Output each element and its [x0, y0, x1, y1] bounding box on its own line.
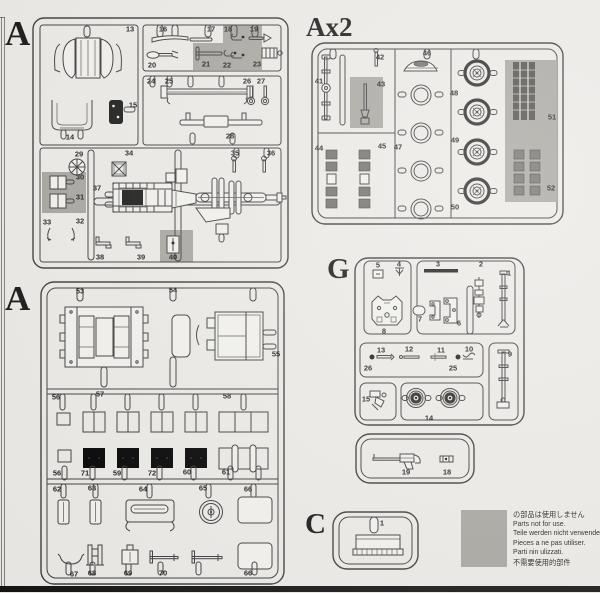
part-label-a2-56: 56	[53, 469, 61, 478]
part-label-a1-23: 23	[253, 60, 261, 69]
legend-line-zh: 不需要使用的部件	[513, 558, 600, 568]
part-label-a2-71: 71	[81, 469, 89, 478]
part-label-a2-54: 54	[169, 286, 177, 295]
part-label-a2-53: 53	[76, 287, 84, 296]
part-label-a1-24: 24	[147, 77, 155, 86]
panel-a1	[33, 18, 288, 268]
part-label-ax2-42: 42	[376, 53, 384, 62]
part-label-a1-26: 26	[243, 77, 251, 86]
panel-a2	[41, 282, 284, 584]
part-label-g-10: 10	[465, 345, 473, 354]
panel-ax2	[312, 43, 563, 224]
part-label-ax2-51: 51	[548, 113, 556, 122]
part-label-g-6: 6	[457, 319, 461, 328]
part-label-g-26: 26	[364, 364, 372, 373]
part-label-a2-59: 59	[113, 469, 121, 478]
panel-letter-ax2: Ax2	[306, 14, 353, 41]
part-label-a2-58: 58	[223, 392, 231, 401]
part-label-a2-57: 57	[96, 390, 104, 399]
part-label-a1-18: 18	[224, 25, 232, 34]
not-for-use-legend: の部品は使用しません Parts not for use. Teile werd…	[513, 510, 600, 567]
box-g-small	[356, 434, 474, 483]
not-for-use-swatch	[461, 510, 507, 567]
part-label-ax2-49: 49	[451, 136, 459, 145]
panel-letter-c: C	[305, 510, 326, 539]
part-label-a2-55: 55	[272, 350, 280, 359]
part-label-a1-29: 29	[75, 150, 83, 159]
part-label-g-4: 4	[397, 260, 401, 269]
part-label-a1-16: 16	[159, 25, 167, 34]
part-label-a2-69: 69	[124, 569, 132, 578]
part-label-g-25: 25	[449, 364, 457, 373]
part-label-a1-32: 32	[76, 217, 84, 226]
part-label-a1-27: 27	[257, 77, 265, 86]
part-label-a1-34: 34	[125, 149, 133, 158]
part-label-g-9: 9	[508, 350, 512, 359]
part-label-a1-33: 33	[43, 218, 51, 227]
part-label-a1-17: 17	[207, 25, 215, 34]
panel-letter-g: G	[327, 255, 350, 284]
part-label-a1-36: 36	[267, 149, 275, 158]
part-label-g-5: 5	[376, 261, 380, 270]
part-label-a1-37: 37	[93, 184, 101, 193]
part-label-g-2: 2	[479, 260, 483, 269]
legend-line-fr: Pieces a ne pas utiliser.	[513, 539, 600, 549]
panel-g	[355, 258, 524, 425]
part-label-g-8: 8	[382, 327, 386, 336]
part-label-g-1: 1	[507, 269, 511, 278]
part-label-a1-21: 21	[202, 60, 210, 69]
part-label-a2-63: 63	[88, 484, 96, 493]
part-label-a1-25: 25	[165, 77, 173, 86]
part-label-ax2-41: 41	[315, 77, 323, 86]
part-label-ax2-48: 48	[450, 89, 458, 98]
wheels-ax2	[458, 61, 497, 203]
part-label-a2-67: 67	[70, 570, 78, 579]
part-label-ax2-47: 47	[394, 143, 402, 152]
part-label-ax2-43: 43	[377, 80, 385, 89]
part-label-a2-65: 65	[199, 484, 207, 493]
part-label-a2-61: 61	[222, 468, 230, 477]
part-label-g-12: 12	[405, 345, 413, 354]
part-label-ax2-52: 52	[547, 184, 555, 193]
part-label-a1-30: 30	[76, 173, 84, 182]
panel-letter-a1: A	[5, 16, 30, 51]
part-label-a1-20: 20	[148, 61, 156, 70]
part-label-g-3: 3	[436, 260, 440, 269]
part-label-a1-19: 19	[250, 25, 258, 34]
part-label-a1-35: 35	[231, 149, 239, 158]
part-label-a1-31: 31	[76, 193, 84, 202]
part-label-c-1: 1	[380, 519, 384, 528]
part-label-g-18: 18	[443, 468, 451, 477]
part-label-a2-70: 70	[159, 569, 167, 578]
part-label-a1-40: 40	[169, 253, 177, 262]
part-label-a1-22: 22	[223, 61, 231, 70]
part-label-ax2-50: 50	[451, 203, 459, 212]
part-label-a1-13: 13	[126, 25, 134, 34]
part-label-g-13: 13	[377, 346, 385, 355]
panel-c	[333, 512, 418, 569]
legend-line-de: Teile werden nicht verwendet.	[513, 529, 600, 539]
part-label-a1-38: 38	[96, 253, 104, 262]
instruction-sheet-page: A Ax2 A G C 1316171819202122232425262715…	[0, 0, 600, 593]
part-label-ax2-46: 46	[423, 49, 431, 58]
panel-letter-a2: A	[5, 281, 30, 316]
part-label-a2-64: 64	[139, 485, 147, 494]
part-label-ax2-45: 45	[378, 142, 386, 151]
part-label-a1-39: 39	[137, 253, 145, 262]
part-label-a2-66: 66	[244, 485, 252, 494]
part-label-a2-60: 60	[183, 468, 191, 477]
part-label-g-15: 15	[362, 395, 370, 404]
part-label-a2-68: 68	[88, 569, 96, 578]
part-label-ax2-44: 44	[315, 144, 323, 153]
part-label-a2-66: 66	[244, 569, 252, 578]
part-label-g-7: 7	[418, 315, 422, 324]
legend-line-en: Parts not for use.	[513, 520, 600, 530]
legend-line-ja: の部品は使用しません	[513, 510, 600, 520]
part-label-a1-14: 14	[66, 133, 74, 142]
part-label-a2-72: 72	[148, 469, 156, 478]
part-label-a1-15: 15	[129, 101, 137, 110]
part-label-a1-28: 28	[226, 132, 234, 141]
part-label-a2-56: 56	[52, 393, 60, 402]
sprue-diagram-art	[0, 0, 600, 593]
legend-line-it: Parti nin ulizzati.	[513, 548, 600, 558]
footer-bar	[0, 586, 600, 592]
part-label-a2-62: 62	[53, 485, 61, 494]
part-label-g-19: 19	[402, 468, 410, 477]
part-label-g-14: 14	[425, 414, 433, 423]
part-label-g-11: 11	[437, 346, 445, 355]
